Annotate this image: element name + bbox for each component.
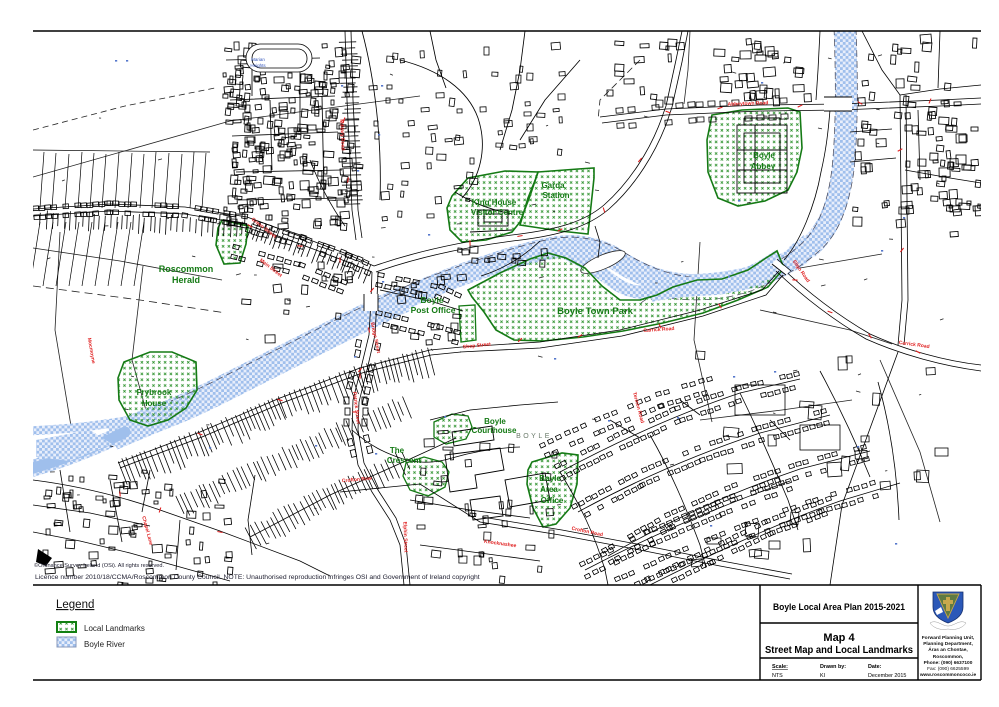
svg-text:King House: King House bbox=[472, 198, 517, 207]
svg-text:Áras an Chontae,: Áras an Chontae, bbox=[928, 646, 968, 653]
svg-text:Office: Office bbox=[541, 496, 564, 505]
svg-text:Boyle: Boyle bbox=[753, 151, 775, 160]
svg-text:NTS: NTS bbox=[772, 673, 783, 679]
svg-text:Planning Department,: Planning Department, bbox=[923, 641, 973, 647]
svg-text:KI: KI bbox=[820, 673, 825, 679]
svg-text:Scale:: Scale: bbox=[772, 664, 788, 670]
svg-text:Boyle: Boyle bbox=[484, 417, 506, 426]
svg-text:Boyle: Boyle bbox=[420, 295, 443, 305]
svg-text:BOYLE: BOYLE bbox=[516, 433, 552, 440]
svg-text:Street Map and Local Landmarks: Street Map and Local Landmarks bbox=[765, 645, 913, 656]
svg-text:The: The bbox=[390, 446, 405, 455]
svg-text:Drawn by:: Drawn by: bbox=[820, 664, 846, 670]
svg-text:Garda: Garda bbox=[541, 181, 565, 190]
svg-text:Marian: Marian bbox=[251, 57, 265, 62]
svg-text:Area: Area bbox=[540, 485, 558, 494]
svg-text:Herald: Herald bbox=[172, 275, 200, 285]
svg-text:Phone: (090) 6637100: Phone: (090) 6637100 bbox=[924, 660, 973, 666]
svg-text:Licence number 2010/18/CCMA/Ro: Licence number 2010/18/CCMA/Roscommon Co… bbox=[35, 574, 480, 581]
svg-text:Crescent: Crescent bbox=[387, 456, 422, 465]
svg-text:Roscommon: Roscommon bbox=[159, 264, 214, 274]
svg-text:Roscommon,: Roscommon, bbox=[933, 654, 964, 660]
svg-text:Boyle Town Park: Boyle Town Park bbox=[557, 306, 634, 317]
svg-text:Legend: Legend bbox=[56, 599, 94, 611]
svg-text:Boyle Local Area Plan 2015-202: Boyle Local Area Plan 2015-2021 bbox=[773, 602, 906, 613]
svg-text:www.roscommoncoco.ie: www.roscommoncoco.ie bbox=[919, 672, 977, 678]
svg-text:Map 4: Map 4 bbox=[823, 632, 855, 644]
svg-text:Local Landmarks: Local Landmarks bbox=[84, 624, 145, 633]
svg-text:Courthouse: Courthouse bbox=[472, 426, 517, 435]
svg-text:Abbey: Abbey bbox=[751, 162, 776, 171]
svg-text:Boyle River: Boyle River bbox=[84, 640, 125, 649]
svg-text:Frybrook: Frybrook bbox=[137, 388, 172, 397]
svg-text:Post Office: Post Office bbox=[411, 305, 456, 315]
svg-text:House: House bbox=[142, 399, 167, 408]
svg-text:Date:: Date: bbox=[868, 664, 882, 670]
svg-text:Forward Planning Unit,: Forward Planning Unit, bbox=[922, 635, 975, 641]
svg-text:December 2015: December 2015 bbox=[868, 673, 906, 679]
svg-text:Boyle: Boyle bbox=[539, 474, 561, 483]
svg-text:Heights: Heights bbox=[250, 63, 266, 68]
svg-text:©Ordnance Survey Ireland (OSi): ©Ordnance Survey Ireland (OSi). All righ… bbox=[34, 562, 164, 569]
svg-text:Elphin Street: Elphin Street bbox=[401, 521, 408, 552]
svg-text:Visitor Centre: Visitor Centre bbox=[471, 208, 524, 217]
svg-text:Station: Station bbox=[542, 191, 569, 200]
svg-text:Fax: (090) 6625599: Fax: (090) 6625599 bbox=[927, 666, 969, 672]
